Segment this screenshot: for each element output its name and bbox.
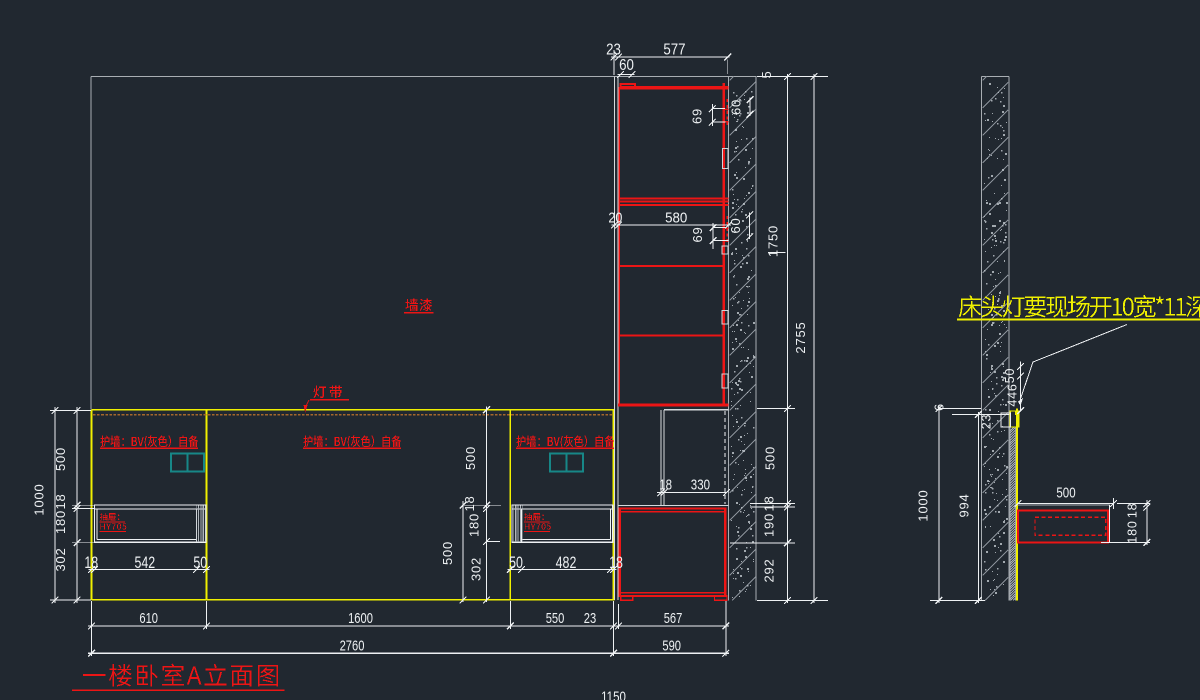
svg-text:1750: 1750 [766,225,781,257]
svg-text:1000: 1000 [32,483,47,515]
svg-text:180: 180 [1126,520,1140,543]
svg-text:18: 18 [84,554,98,572]
svg-text:2755: 2755 [793,321,808,353]
svg-text:577: 577 [663,42,685,59]
svg-text:50: 50 [1003,368,1017,384]
svg-text:50: 50 [193,554,207,572]
svg-text:18: 18 [1126,503,1140,519]
svg-text:2760: 2760 [340,637,365,654]
svg-text:500: 500 [763,446,778,470]
svg-text:50: 50 [509,554,523,572]
svg-text:190: 190 [762,513,777,537]
svg-text:23: 23 [584,610,596,627]
svg-text:610: 610 [139,610,158,627]
svg-text:446: 446 [1006,383,1020,406]
svg-text:69: 69 [690,226,705,242]
svg-text:567: 567 [664,610,683,627]
svg-text:292: 292 [762,558,777,582]
svg-text:60: 60 [728,217,743,233]
svg-text:580: 580 [665,210,687,227]
svg-text:542: 542 [134,554,155,572]
svg-text:180: 180 [467,513,482,537]
svg-text:330: 330 [691,477,710,494]
svg-text:550: 550 [546,610,565,627]
svg-text:1150: 1150 [601,688,626,700]
svg-text:1000: 1000 [916,489,931,521]
svg-text:18: 18 [762,495,777,511]
svg-text:18: 18 [462,495,477,511]
svg-text:302: 302 [469,557,484,581]
svg-text:6: 6 [933,403,947,411]
svg-text:18: 18 [609,554,623,572]
svg-text:60: 60 [729,99,744,115]
svg-text:18: 18 [659,477,672,494]
svg-text:1600: 1600 [348,610,373,627]
svg-text:23: 23 [980,414,994,430]
svg-text:500: 500 [440,541,455,565]
svg-text:590: 590 [662,637,681,654]
svg-text:60: 60 [619,57,634,74]
svg-text:5: 5 [759,70,774,78]
svg-text:994: 994 [957,493,972,517]
svg-text:20: 20 [608,210,622,227]
svg-text:482: 482 [556,554,577,572]
svg-text:23: 23 [606,42,621,59]
svg-text:500: 500 [463,446,478,470]
svg-text:69: 69 [690,108,705,124]
svg-text:500: 500 [1056,485,1075,502]
